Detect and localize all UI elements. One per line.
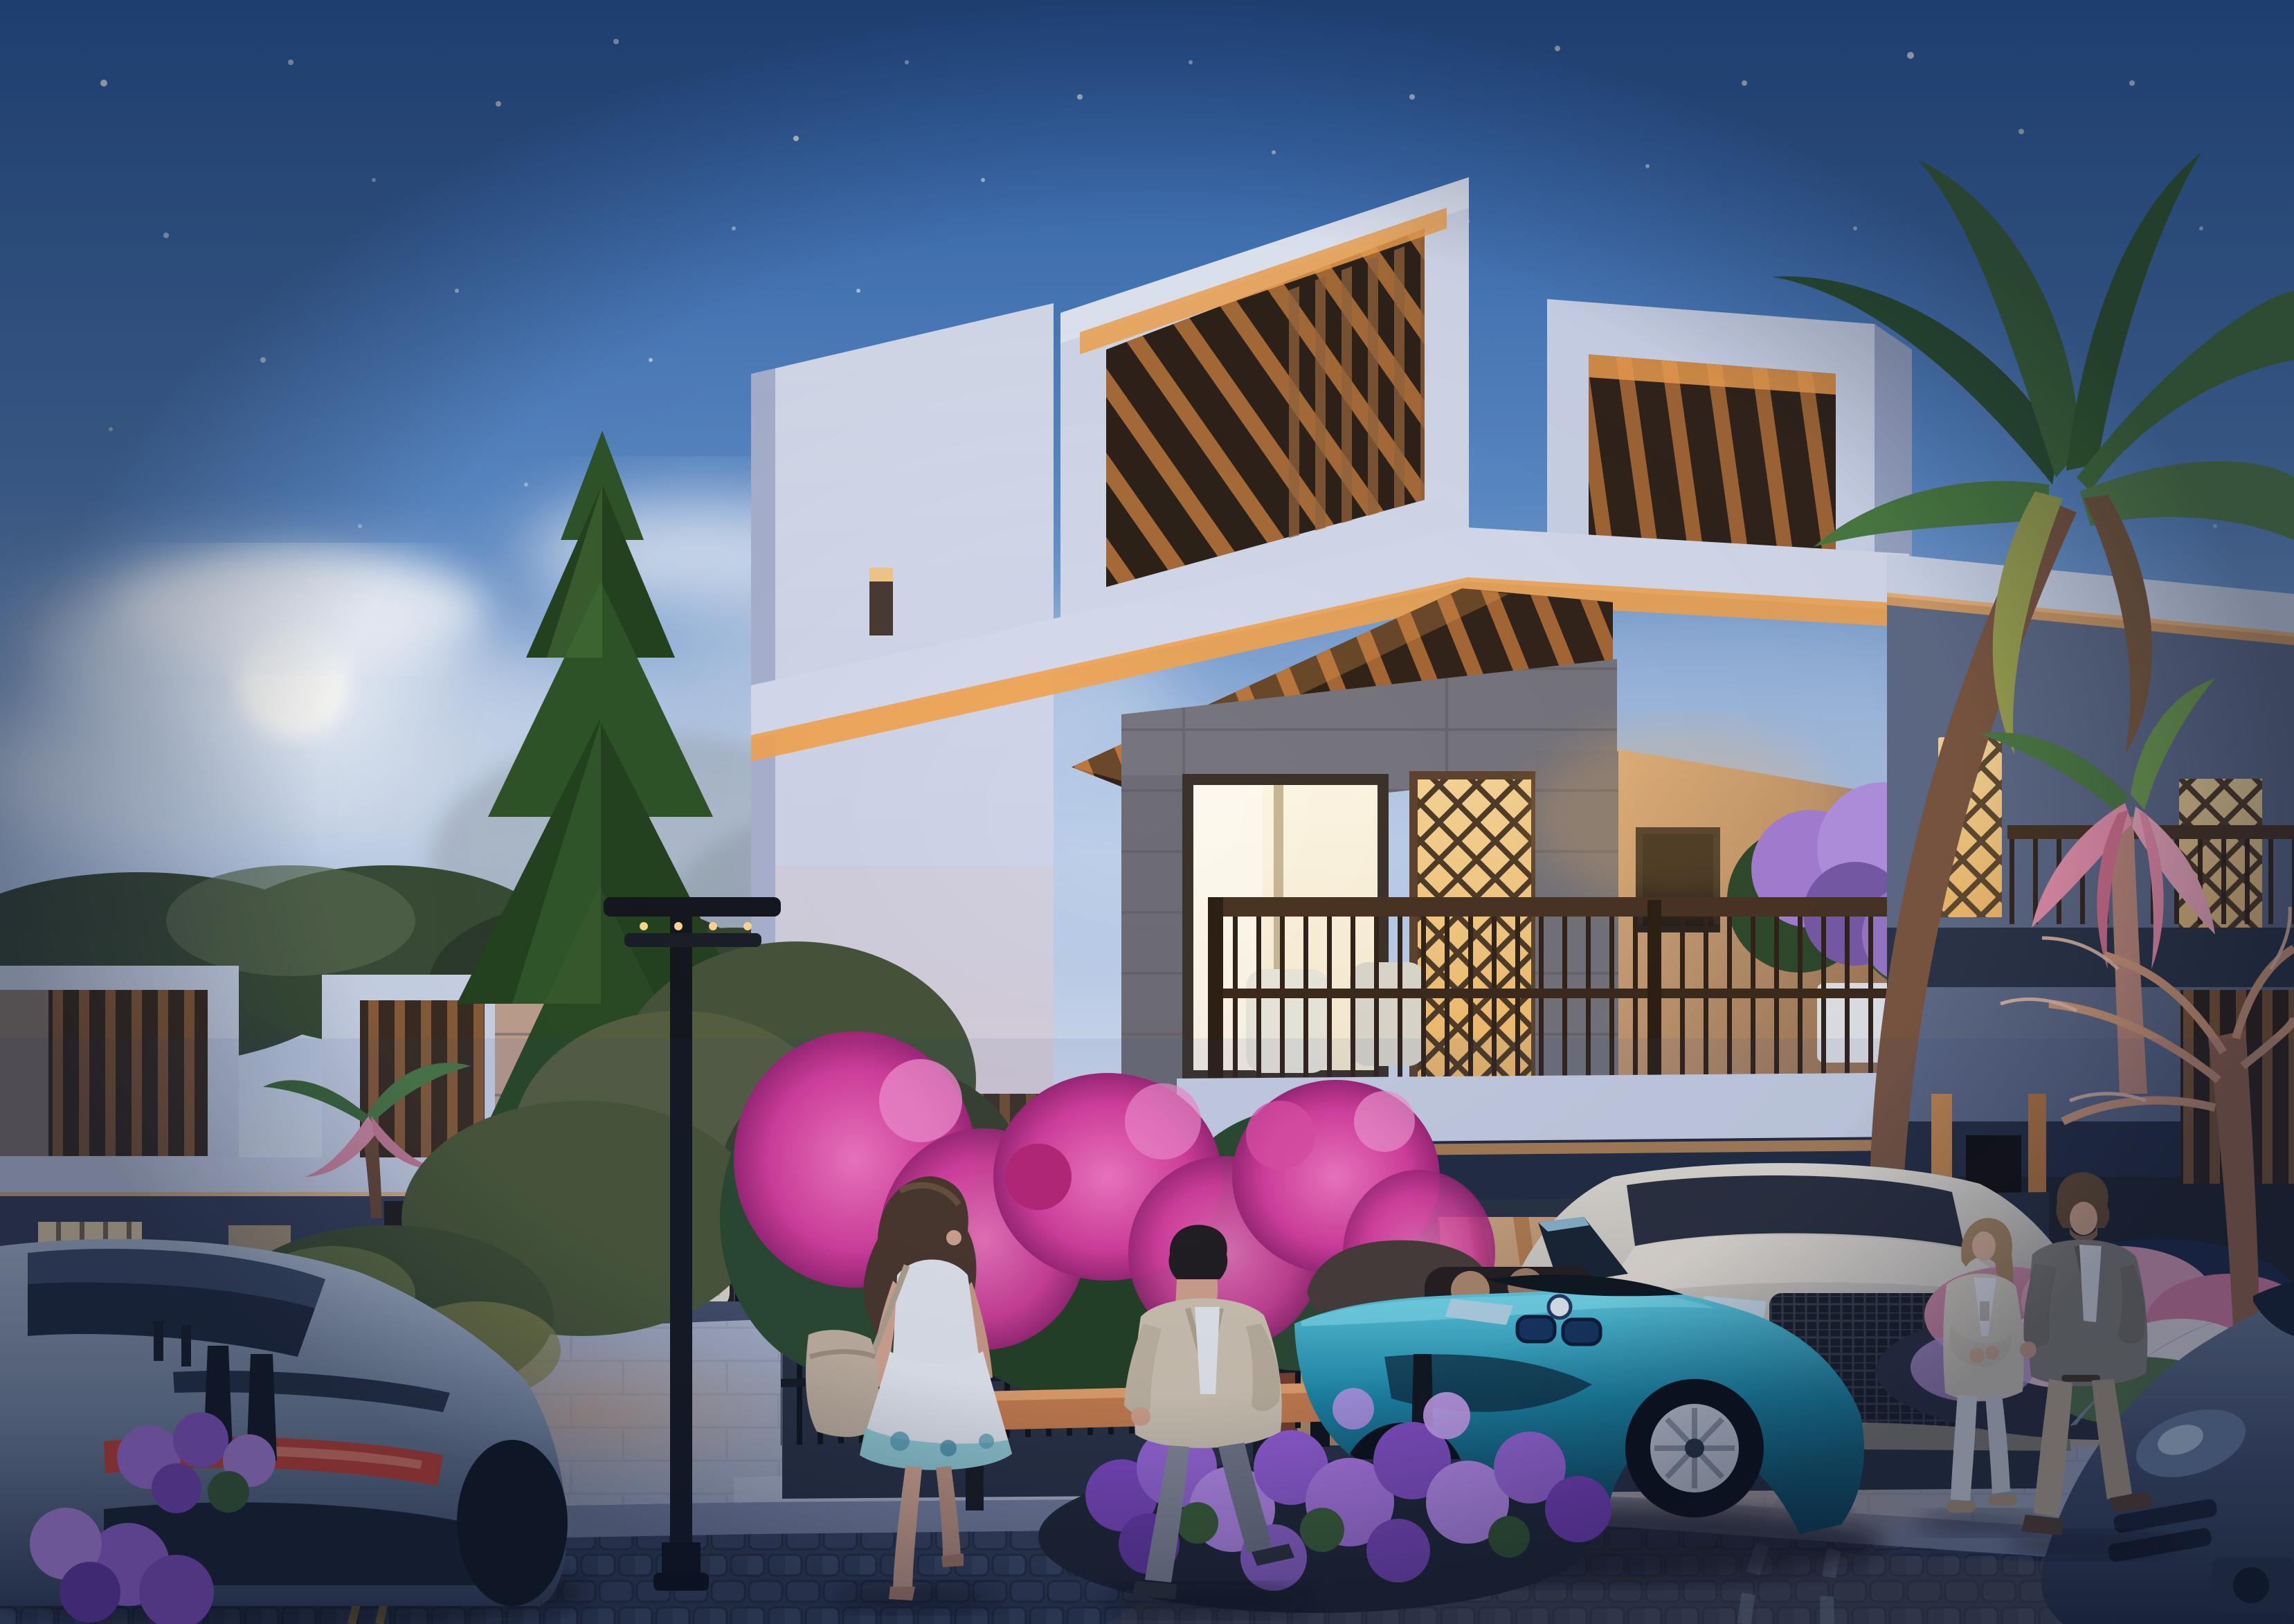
vignette [0, 0, 2294, 1624]
rendering-canvas [0, 0, 2294, 1624]
